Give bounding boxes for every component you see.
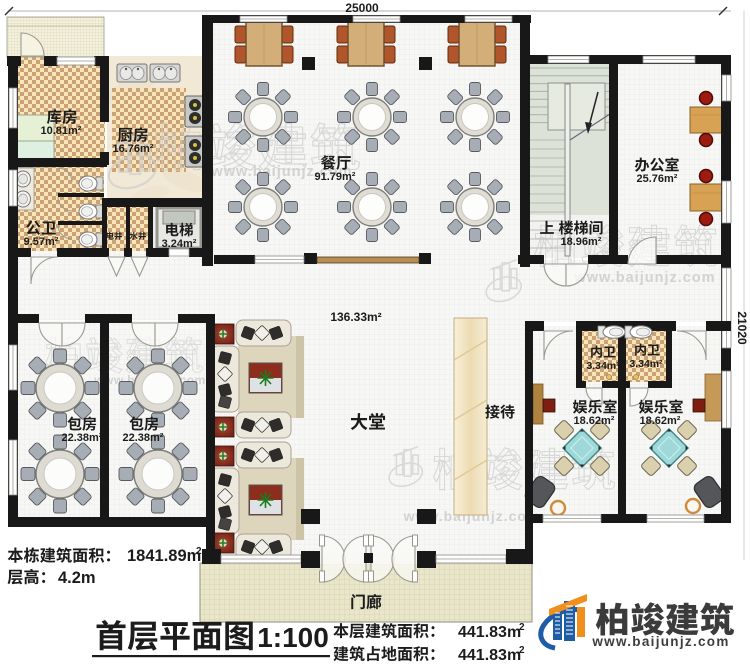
svg-text:22.38m²: 22.38m² <box>62 432 103 444</box>
svg-text:91.79m²: 91.79m² <box>315 171 356 183</box>
svg-text:25.76m²: 25.76m² <box>637 173 678 185</box>
svg-text:18.96m²: 18.96m² <box>561 236 602 248</box>
svg-text:1:100: 1:100 <box>257 622 329 653</box>
svg-text:21020: 21020 <box>735 311 749 345</box>
svg-text:2: 2 <box>519 622 525 633</box>
svg-text:9.57m²: 9.57m² <box>24 236 59 248</box>
svg-text:1841.89m: 1841.89m <box>127 547 201 565</box>
svg-text:10.81m²: 10.81m² <box>41 125 82 137</box>
svg-text:18.62m²: 18.62m² <box>640 415 681 427</box>
svg-text:2: 2 <box>519 645 525 656</box>
svg-text:25000: 25000 <box>345 1 379 15</box>
svg-text:2: 2 <box>196 546 202 557</box>
svg-text:16.76m²: 16.76m² <box>113 143 154 155</box>
svg-text:441.83m: 441.83m <box>458 647 521 664</box>
svg-text:3.34m²: 3.34m² <box>586 360 620 372</box>
svg-text:www.baijunjz.com: www.baijunjz.com <box>591 634 729 649</box>
svg-text:3.34m²: 3.34m² <box>629 358 663 370</box>
svg-text:441.83m: 441.83m <box>458 624 521 641</box>
svg-text:3.24m²: 3.24m² <box>162 238 197 250</box>
svg-text:22.38m²: 22.38m² <box>123 432 164 444</box>
svg-text:18.62m²: 18.62m² <box>574 415 615 427</box>
svg-text:www.baijunjz.com: www.baijunjz.com <box>573 270 715 286</box>
svg-text:136.33m²: 136.33m² <box>330 310 381 324</box>
svg-text:4.2m: 4.2m <box>58 569 96 587</box>
